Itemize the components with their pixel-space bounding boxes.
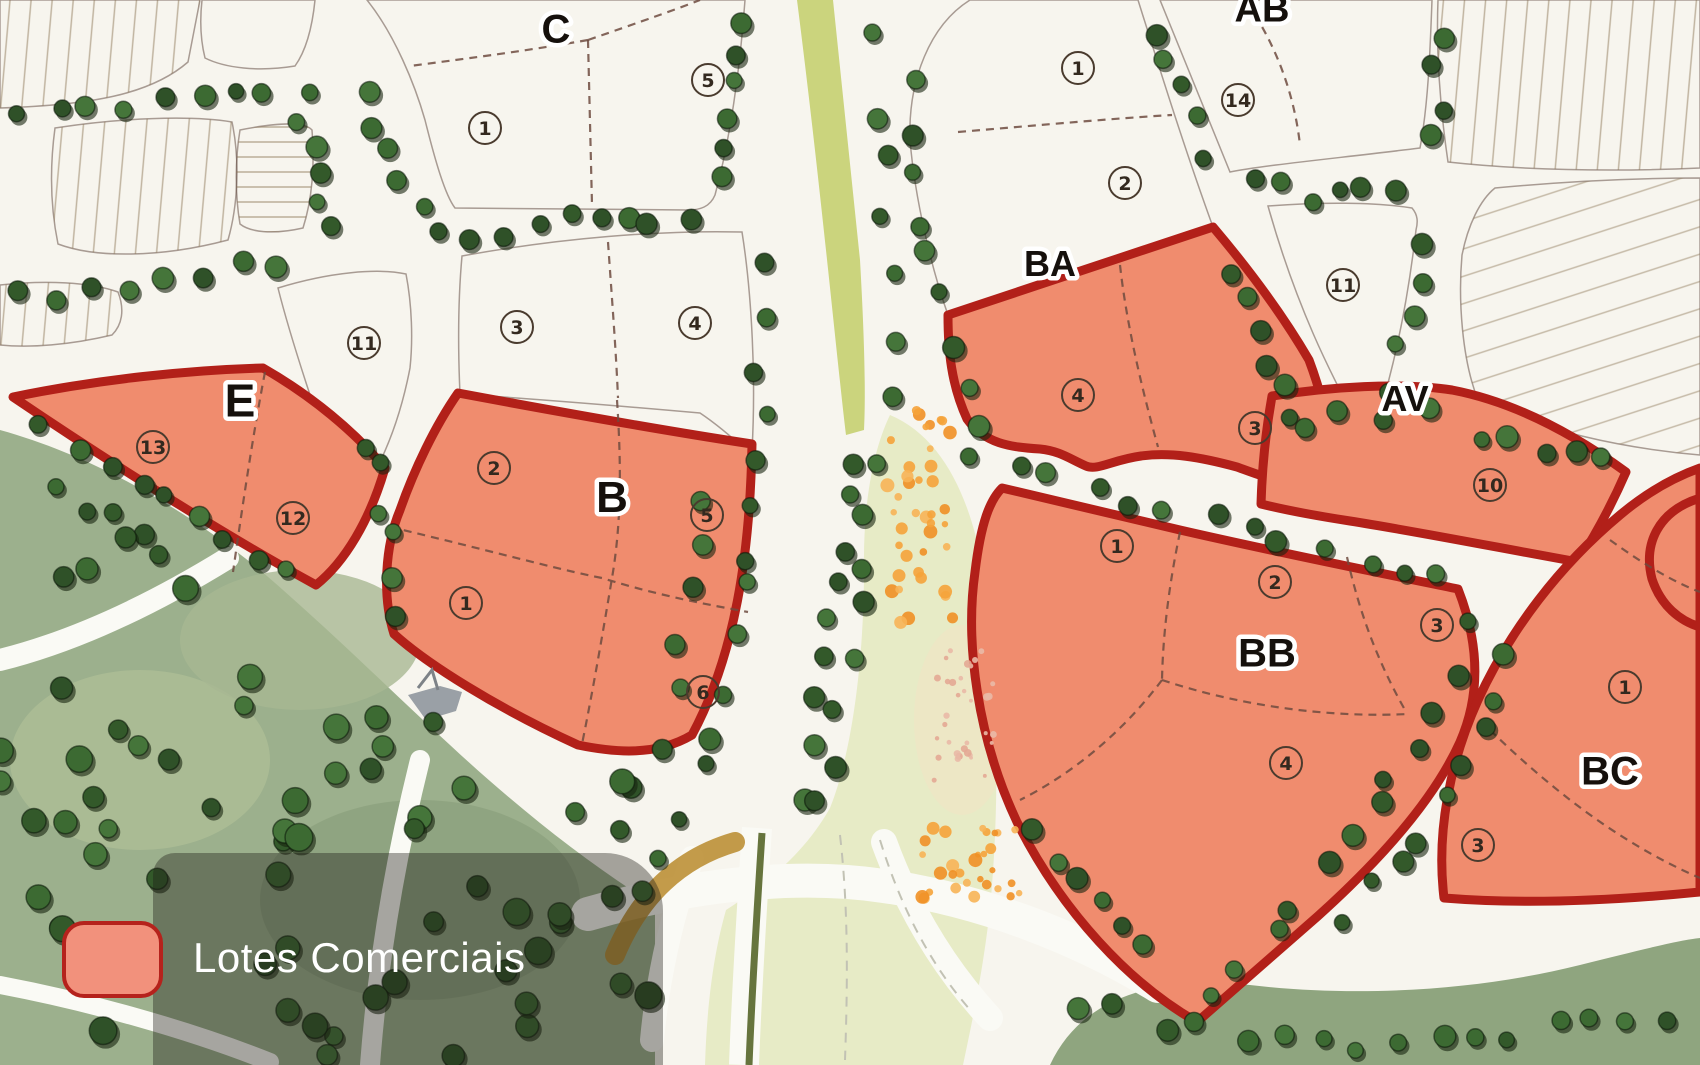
flower-speckle <box>894 616 907 629</box>
lot-number: 3 <box>1430 615 1443 637</box>
flower-speckle <box>964 660 972 668</box>
flower-speckle <box>919 851 926 858</box>
flower-speckle <box>912 509 920 517</box>
flower-speckle <box>983 774 987 778</box>
flower-speckle <box>932 778 937 783</box>
flower-speckle <box>893 569 906 582</box>
flower-speckle <box>943 426 957 440</box>
flower-speckle <box>938 585 952 599</box>
flower-speckle <box>915 476 923 484</box>
lot-number: 6 <box>696 682 709 704</box>
lot-number: 2 <box>1118 173 1131 195</box>
flower-speckle <box>895 542 903 550</box>
lot-number: 14 <box>1225 90 1251 112</box>
lot-number: 11 <box>1330 275 1356 297</box>
flower-speckle <box>962 689 966 693</box>
flower-speckle <box>964 749 972 757</box>
block-label-AB: AB <box>1235 0 1290 31</box>
block-label-BB: BB <box>1238 631 1296 675</box>
flower-speckle <box>977 876 983 882</box>
flower-speckle <box>927 475 939 487</box>
flower-speckle <box>947 740 952 745</box>
legend-swatch-commercial <box>62 921 163 998</box>
flower-speckle <box>984 731 988 735</box>
flower-speckle <box>956 693 961 698</box>
flower-speckle <box>894 493 902 501</box>
lot-number: 3 <box>1248 418 1261 440</box>
flower-speckle <box>1011 826 1018 833</box>
flower-speckle <box>942 521 948 527</box>
lot-number: 5 <box>700 505 713 527</box>
flower-speckle <box>913 567 924 578</box>
lot-number: 1 <box>1618 677 1631 699</box>
flower-speckle <box>969 699 973 703</box>
flower-speckle <box>901 550 913 562</box>
lot-number: 5 <box>701 70 714 92</box>
flower-speckle <box>989 867 995 873</box>
lot-number: 1 <box>459 593 472 615</box>
flower-speckle <box>985 693 992 700</box>
flower-speckle <box>972 657 978 663</box>
flower-speckle <box>912 406 921 415</box>
flower-speckle <box>935 755 941 761</box>
block-label-C: C <box>542 7 571 51</box>
flower-speckle <box>942 722 947 727</box>
lot-hatching <box>236 124 313 232</box>
flower-speckle <box>935 736 939 740</box>
lot-number: 2 <box>1268 572 1281 594</box>
flower-speckle <box>943 712 949 718</box>
flower-speckle <box>927 445 934 452</box>
flower-speckle <box>880 478 894 492</box>
lot-hatching <box>1437 0 1700 170</box>
block-label-E: E <box>225 375 256 427</box>
flower-speckle <box>948 870 957 879</box>
flower-speckle <box>927 510 935 518</box>
flower-speckle <box>1008 879 1016 887</box>
masterplan-map: 15C34111312E2156B12BA4314AB1110AV1234BB1… <box>0 0 1700 1065</box>
flower-speckle <box>990 741 994 745</box>
lot-number: 4 <box>1279 753 1292 775</box>
lot-number: 4 <box>1071 385 1084 407</box>
flower-speckle <box>920 835 931 846</box>
flower-speckle <box>958 676 963 681</box>
lot-number: 11 <box>351 333 377 355</box>
lot-number: 12 <box>280 508 306 530</box>
flower-speckle <box>938 416 947 425</box>
flower-speckle <box>939 826 951 838</box>
block-label-BC: BC <box>1581 749 1639 793</box>
lot-number: 3 <box>1471 835 1484 857</box>
lot-number: 4 <box>688 313 701 335</box>
flower-speckle <box>968 853 982 867</box>
lot-number: 1 <box>1110 536 1123 558</box>
flower-speckle <box>940 504 951 515</box>
flower-speckle <box>947 612 958 623</box>
flower-speckle <box>954 750 961 757</box>
flower-speckle <box>890 509 896 515</box>
flower-speckle <box>1016 890 1022 896</box>
flower-speckle <box>964 741 969 746</box>
flower-speckle <box>950 883 961 894</box>
flower-speckle <box>927 519 935 527</box>
legend-label: Lotes Comerciais <box>193 930 525 986</box>
block-label-AV: AV <box>1381 378 1428 419</box>
flower-speckle <box>945 679 951 685</box>
lot-number: 10 <box>1477 475 1503 497</box>
flower-speckle <box>948 648 953 653</box>
lot-hatching <box>52 118 237 254</box>
flower-speckle <box>1007 892 1015 900</box>
lot-number: 13 <box>140 437 166 459</box>
flower-speckle <box>887 436 895 444</box>
flower-speckle <box>895 586 903 594</box>
lot-number: 3 <box>510 317 523 339</box>
flower-speckle <box>963 879 971 887</box>
flower-speckle <box>927 822 940 835</box>
flower-speckle <box>978 648 984 654</box>
flower-speckle <box>896 522 908 534</box>
flower-speckle <box>994 885 1001 892</box>
flower-speckle <box>990 731 997 738</box>
block-label-BA-north: BA <box>1024 243 1076 284</box>
flower-speckle <box>981 851 988 858</box>
flower-speckle <box>985 843 996 854</box>
flower-speckle <box>968 891 980 903</box>
flower-speckle <box>934 675 941 682</box>
flower-speckle <box>992 830 999 837</box>
flower-speckle <box>943 543 951 551</box>
flower-speckle <box>979 825 986 832</box>
lot-number: 2 <box>487 458 500 480</box>
flower-speckle <box>934 867 947 880</box>
block-label-B: B <box>596 473 628 522</box>
flower-speckle <box>969 756 973 760</box>
flower-speckle <box>920 548 928 556</box>
flower-speckle <box>901 470 913 482</box>
lot-number: 1 <box>478 118 491 140</box>
flower-speckle <box>990 681 995 686</box>
flower-speckle <box>982 880 992 890</box>
flower-speckle <box>944 656 949 661</box>
flower-speckle <box>922 423 929 430</box>
lot-number: 1 <box>1071 58 1084 80</box>
flower-speckle <box>925 460 938 473</box>
flower-speckle <box>915 890 929 904</box>
